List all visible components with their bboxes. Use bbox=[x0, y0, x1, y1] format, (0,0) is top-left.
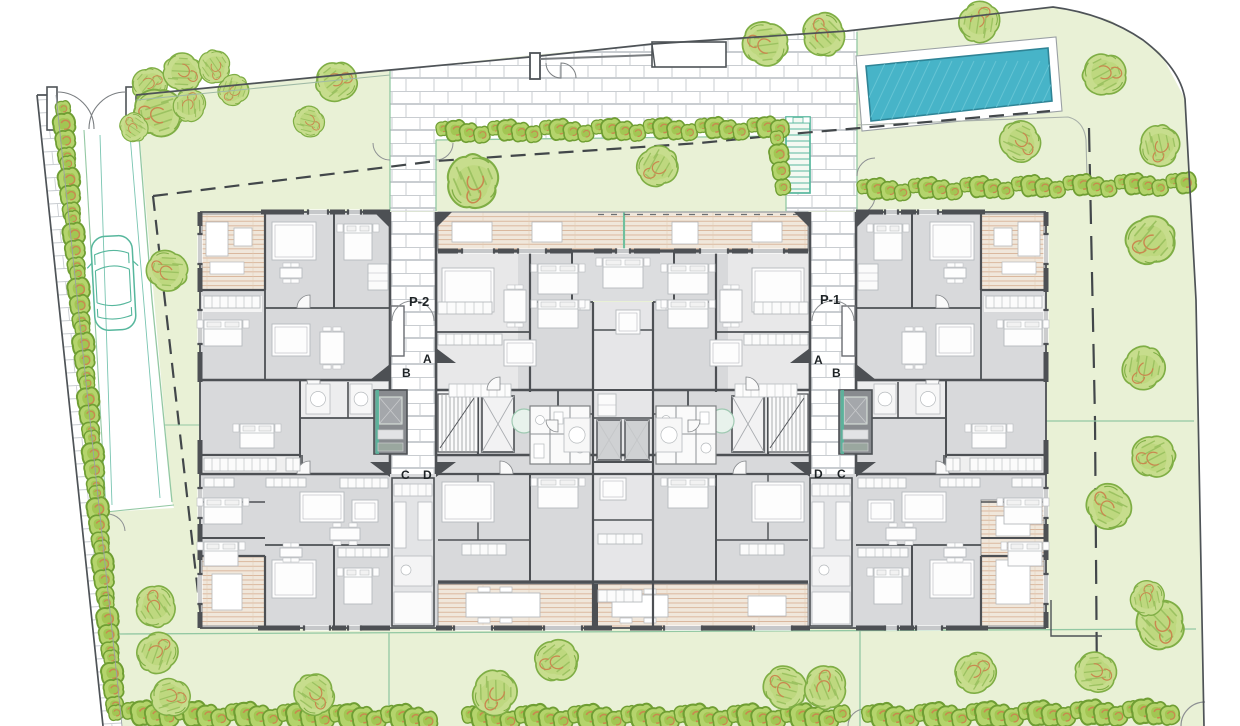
svg-text:B: B bbox=[832, 366, 841, 380]
svg-text:C: C bbox=[837, 467, 846, 481]
svg-text:A: A bbox=[423, 352, 432, 366]
svg-text:C: C bbox=[401, 468, 410, 482]
svg-text:D: D bbox=[423, 468, 432, 482]
svg-text:A: A bbox=[814, 353, 823, 367]
svg-text:P-2: P-2 bbox=[409, 294, 429, 309]
svg-text:D: D bbox=[814, 467, 823, 481]
svg-text:P-1: P-1 bbox=[820, 292, 840, 307]
svg-text:B: B bbox=[402, 366, 411, 380]
